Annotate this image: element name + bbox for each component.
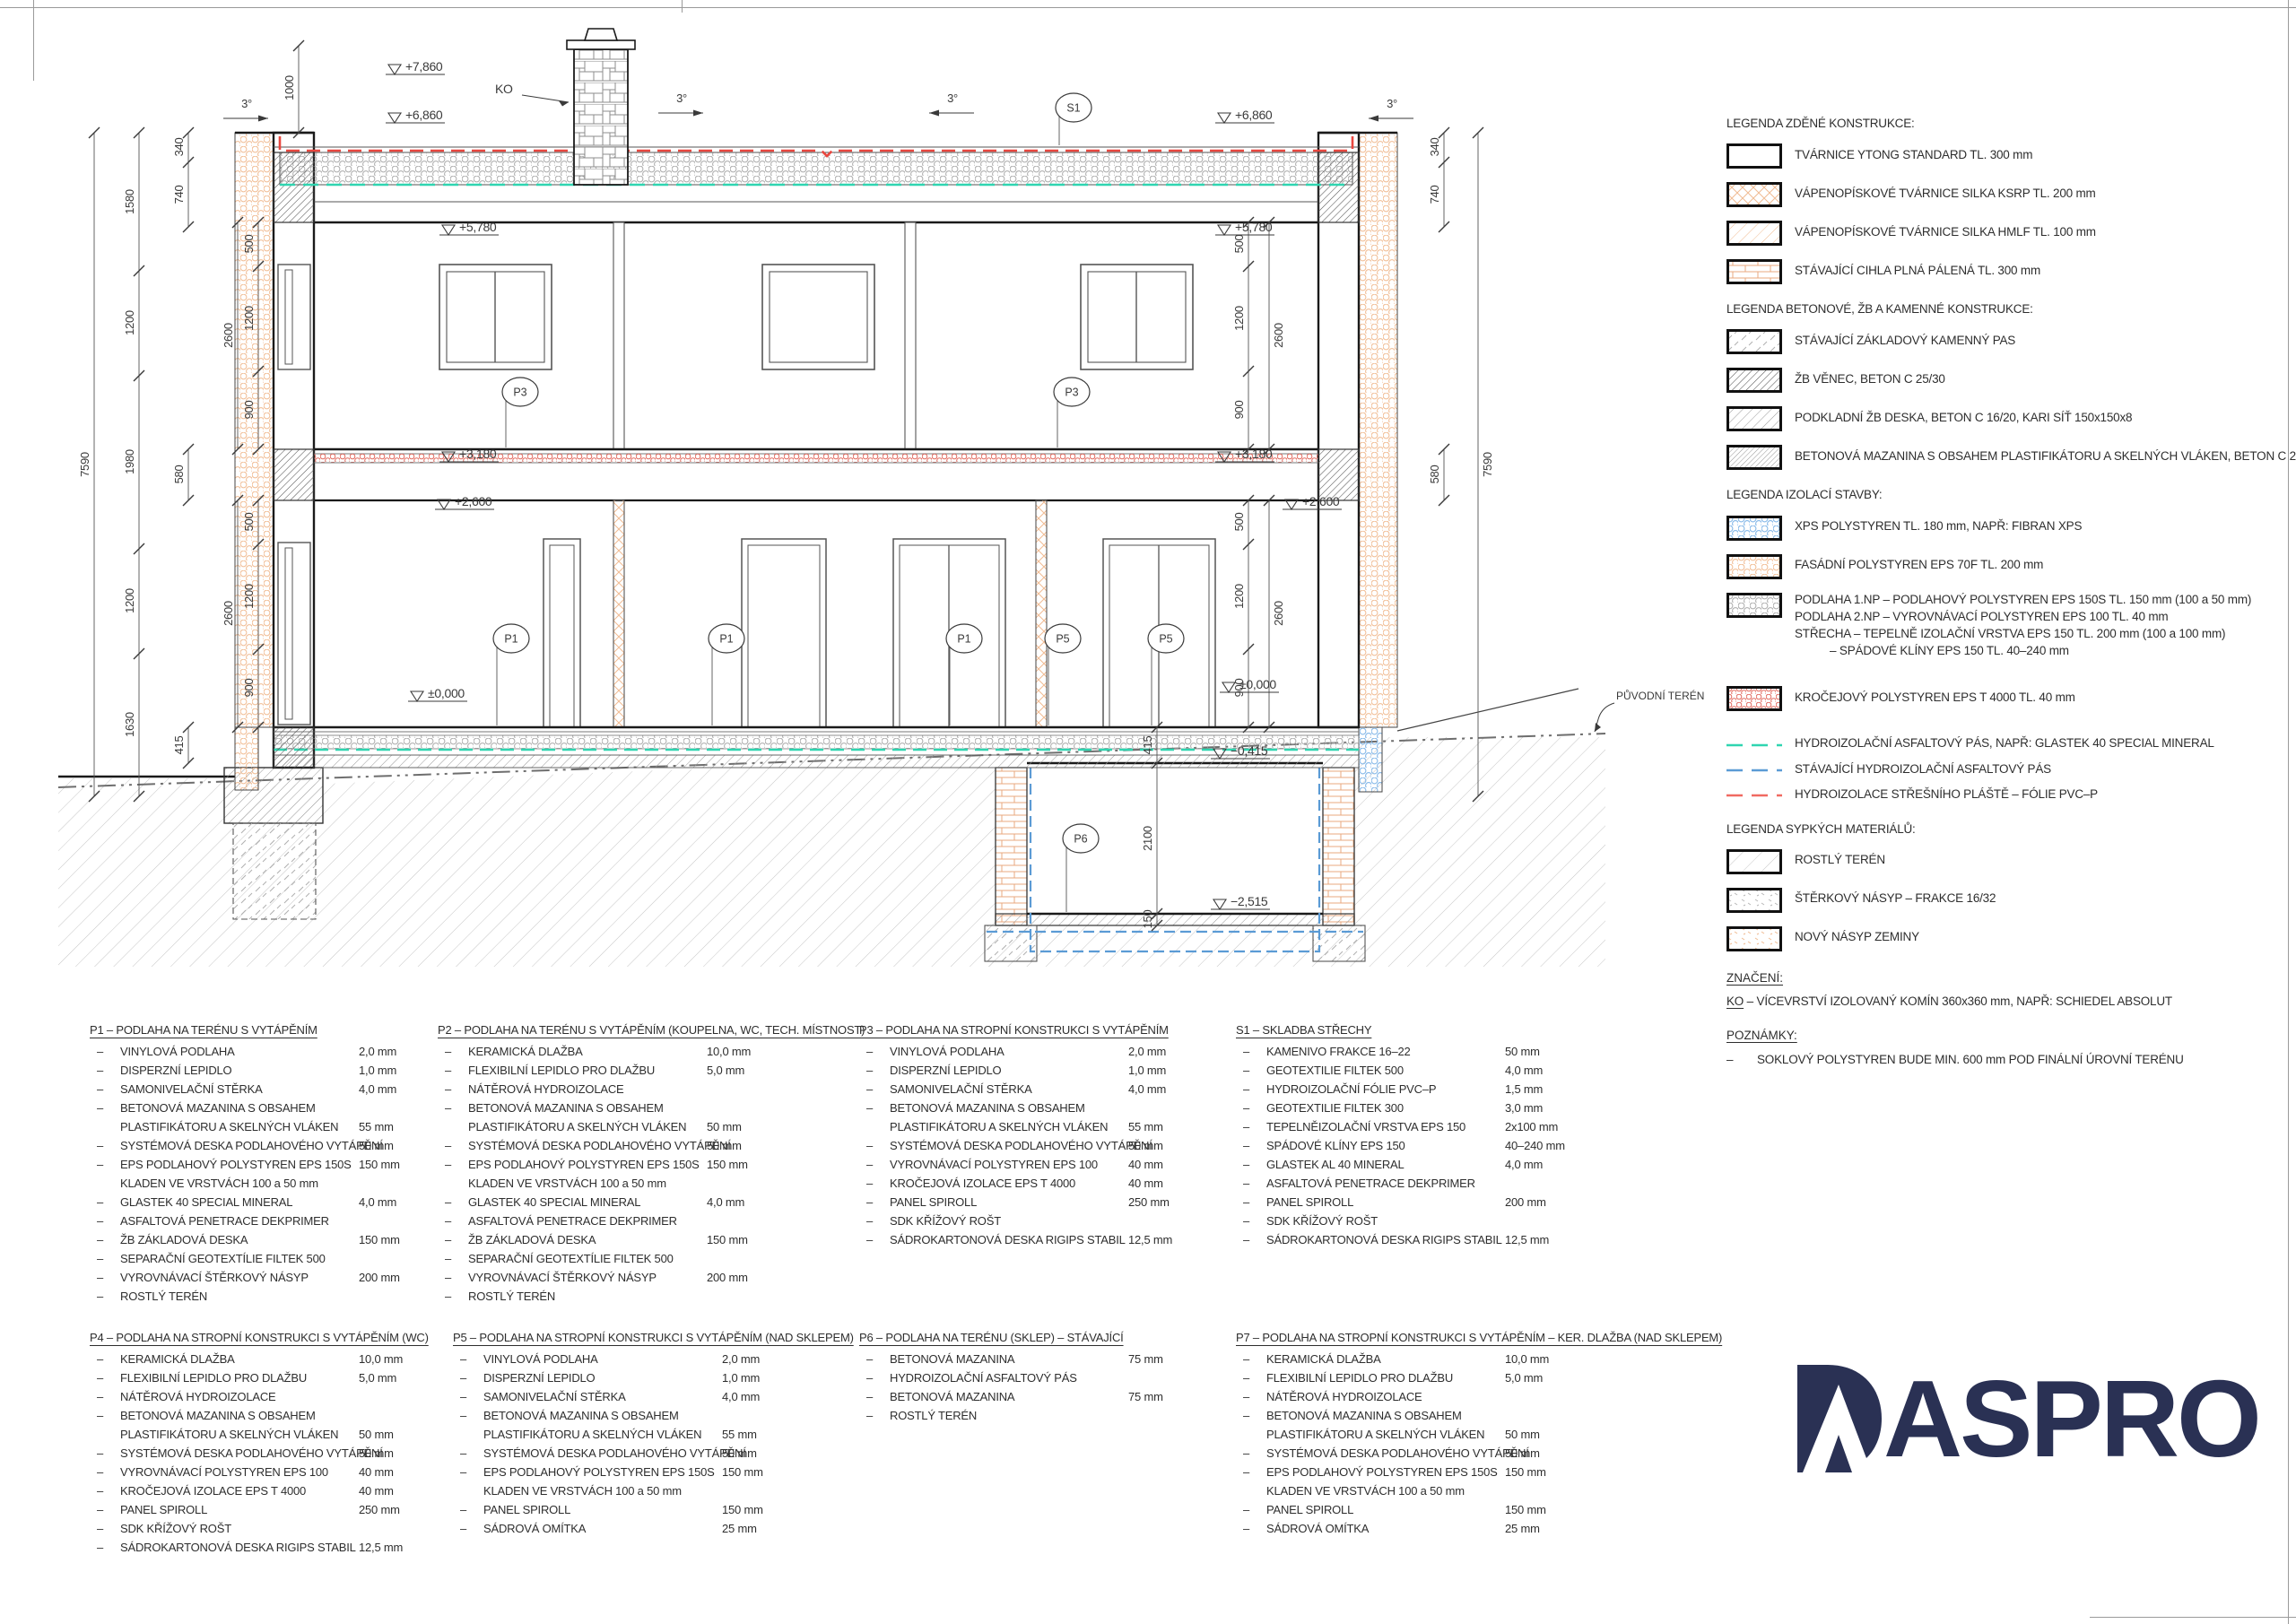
legend-item: ROSTLÝ TERÉN — [1726, 849, 2287, 874]
building-section-drawing: 7590158012001980120016303407405804152600… — [54, 18, 1722, 1013]
spec-row: –ROSTLÝ TERÉN — [438, 1287, 805, 1306]
drawing-label: 740 — [172, 186, 186, 204]
legend-item-label: ŠTĚRKOVÝ NÁSYP – FRAKCE 16/32 — [1795, 891, 1996, 908]
drawing-label: ±0,000 — [1239, 677, 1276, 691]
spec-row: PLASTIFIKÁTORU A SKELNÝCH VLÁKEN55 mm — [453, 1425, 821, 1444]
legend-section: LEGENDA BETONOVÉ, ŽB A KAMENNÉ KONSTRUKC… — [1726, 302, 2287, 470]
drawing-label: ±0,000 — [428, 686, 465, 700]
legend-item: BETONOVÁ MAZANINA S OBSAHEM PLASTIFIKÁTO… — [1726, 445, 2287, 470]
drawing-label: 340 — [172, 138, 186, 157]
legend-item-label: BETONOVÁ MAZANINA S OBSAHEM PLASTIFIKÁTO… — [1795, 449, 2296, 466]
spec-row: –VYROVNÁVACÍ POLYSTYREN EPS 10040 mm — [90, 1463, 457, 1481]
spec-row: –SYSTÉMOVÁ DESKA PODLAHOVÉHO VYTÁPĚNÍ50 … — [438, 1136, 805, 1155]
drawing-label: 500 — [242, 513, 256, 532]
spec-title: P1 – PODLAHA NA TERÉNU S VYTÁPĚNÍM — [90, 1020, 457, 1039]
spec-row: PLASTIFIKÁTORU A SKELNÝCH VLÁKEN50 mm — [1236, 1425, 1666, 1444]
spec-row: –NÁTĚROVÁ HYDROIZOLACE — [438, 1080, 805, 1099]
legend-item: TVÁRNICE YTONG STANDARD TL. 300 mm — [1726, 143, 2287, 169]
spec-row: –KROČEJOVÁ IZOLACE EPS T 400040 mm — [90, 1481, 457, 1500]
spec-row: –ŽB ZÁKLADOVÁ DESKA150 mm — [90, 1230, 457, 1249]
spec-row: –SAMONIVELAČNÍ STĚRKA4,0 mm — [453, 1387, 821, 1406]
legend-panel: LEGENDA ZDĚNÉ KONSTRUKCE:TVÁRNICE YTONG … — [1726, 117, 2287, 1067]
drawing-label: PŮVODNÍ TERÉN — [1616, 689, 1704, 702]
drawing-label: P3 — [1065, 386, 1078, 399]
drawing-label: 1000 — [283, 75, 296, 100]
drawing-label: +6,860 — [405, 108, 443, 122]
spec-row: –PANEL SPIROLL150 mm — [1236, 1500, 1666, 1519]
spec-title: P4 – PODLAHA NA STROPNÍ KONSTRUKCI S VYT… — [90, 1328, 457, 1347]
legend-item-label: KROČEJOVÝ POLYSTYREN EPS T 4000 TL. 40 m… — [1795, 690, 2075, 708]
note-text: SOKLOVÝ POLYSTYREN BUDE MIN. 600 mm POD … — [1757, 1053, 2184, 1066]
spec-row: PLASTIFIKÁTORU A SKELNÝCH VLÁKEN55 mm — [90, 1117, 457, 1136]
drawing-label: 740 — [1428, 186, 1441, 204]
spec-row: KLADEN VE VRSTVÁCH 100 a 50 mm — [453, 1481, 821, 1500]
drawing-label: −0,415 — [1231, 743, 1268, 758]
spec-row: –SDK KŘÍŽOVÝ ROŠT — [90, 1519, 457, 1538]
spec-row: KLADEN VE VRSTVÁCH 100 a 50 mm — [1236, 1481, 1666, 1500]
ko-text: – VÍCEVRSTVÍ IZOLOVANÝ KOMÍN 360x360 mm,… — [1744, 994, 2172, 1008]
drawing-label: S1 — [1066, 102, 1080, 115]
spec-row: –BETONOVÁ MAZANINA75 mm — [859, 1387, 1227, 1406]
drawing-label: 3° — [676, 91, 687, 105]
spec-row: –SYSTÉMOVÁ DESKA PODLAHOVÉHO VYTÁPĚNÍ50 … — [859, 1136, 1227, 1155]
frame-tick-top — [682, 0, 683, 13]
legend-item: KROČEJOVÝ POLYSTYREN EPS T 4000 TL. 40 m… — [1726, 686, 2287, 711]
legend-swatch-icon — [1726, 686, 1782, 711]
spec-block-p7: P7 – PODLAHA NA STROPNÍ KONSTRUKCI S VYT… — [1236, 1328, 1666, 1538]
legend-line-swatch — [1726, 765, 1782, 776]
spec-row: –KERAMICKÁ DLAŽBA10,0 mm — [1236, 1350, 1666, 1368]
legend-item-label: PODLAHA 1.NP – PODLAHOVÝ POLYSTYREN EPS … — [1795, 593, 2251, 662]
spec-row: –PANEL SPIROLL150 mm — [453, 1500, 821, 1519]
roof — [274, 136, 1359, 222]
drawing-label: +5,780 — [459, 220, 497, 234]
spec-row: –HYDROIZOLAČNÍ FÓLIE PVC–P1,5 mm — [1236, 1080, 1604, 1099]
spec-row: –SDK KŘÍŽOVÝ ROŠT — [1236, 1211, 1604, 1230]
spec-row: KLADEN VE VRSTVÁCH 100 a 50 mm — [438, 1174, 805, 1193]
legend-section-title: LEGENDA BETONOVÉ, ŽB A KAMENNÉ KONSTRUKC… — [1726, 302, 2287, 317]
spec-row: –PANEL SPIROLL250 mm — [859, 1193, 1227, 1211]
note-dash: – — [1726, 1053, 1757, 1067]
legend-item-label: HYDROIZOLAČNÍ ASFALTOVÝ PÁS, NAPŘ: GLAST… — [1795, 736, 2214, 753]
window — [1081, 265, 1193, 369]
spec-row: –BETONOVÁ MAZANINA S OBSAHEM — [1236, 1406, 1666, 1425]
legend-item-label: HYDROIZOLACE STŘEŠNÍHO PLÁŠTĚ – FÓLIE PV… — [1795, 787, 2098, 804]
drawing-label: 7590 — [78, 452, 91, 477]
spec-title: S1 – SKLADBA STŘECHY — [1236, 1020, 1604, 1039]
spec-row: –SÁDROVÁ OMÍTKA25 mm — [453, 1519, 821, 1538]
drawing-label: 2600 — [1272, 323, 1285, 348]
spec-row: PLASTIFIKÁTORU A SKELNÝCH VLÁKEN55 mm — [859, 1117, 1227, 1136]
spec-row: –DISPERZNÍ LEPIDLO1,0 mm — [90, 1061, 457, 1080]
spec-row: –SAMONIVELAČNÍ STĚRKA4,0 mm — [90, 1080, 457, 1099]
legend-item-label: TVÁRNICE YTONG STANDARD TL. 300 mm — [1795, 148, 2032, 165]
legend-line-swatch — [1726, 790, 1782, 801]
drawing-label: 150 — [1141, 910, 1154, 929]
legend-section: LEGENDA IZOLACÍ STAVBY:XPS POLYSTYREN TL… — [1726, 488, 2287, 804]
spec-row: –VYROVNÁVACÍ ŠTĚRKOVÝ NÁSYP200 mm — [90, 1268, 457, 1287]
legend-section-title: LEGENDA IZOLACÍ STAVBY: — [1726, 488, 2287, 502]
spec-title: P2 – PODLAHA NA TERÉNU S VYTÁPĚNÍM (KOUP… — [438, 1020, 805, 1039]
drawing-label: P5 — [1056, 633, 1069, 646]
drawing-label: 2100 — [1141, 826, 1154, 851]
spec-row: –ASFALTOVÁ PENETRACE DEKPRIMER — [90, 1211, 457, 1230]
drawing-label: 900 — [242, 679, 256, 698]
poznamky-title: POZNÁMKY: — [1726, 1029, 2287, 1043]
spec-row: –ŽB ZÁKLADOVÁ DESKA150 mm — [438, 1230, 805, 1249]
legend-item-label: NOVÝ NÁSYP ZEMINY — [1795, 930, 1919, 947]
spec-row: –SÁDROKARTONOVÁ DESKA RIGIPS STABIL12,5 … — [1236, 1230, 1604, 1249]
legend-item: NOVÝ NÁSYP ZEMINY — [1726, 926, 2287, 951]
spec-row: –TEPELNĚIZOLAČNÍ VRSTVA EPS 1502x100 mm — [1236, 1117, 1604, 1136]
legend-swatch-icon — [1726, 593, 1782, 618]
spec-row: –KROČEJOVÁ IZOLACE EPS T 400040 mm — [859, 1174, 1227, 1193]
spec-row: –NÁTĚROVÁ HYDROIZOLACE — [1236, 1387, 1666, 1406]
drawing-label: P1 — [504, 633, 517, 646]
spec-title: P7 – PODLAHA NA STROPNÍ KONSTRUKCI S VYT… — [1236, 1328, 1666, 1347]
spec-row: –VYROVNÁVACÍ POLYSTYREN EPS 10040 mm — [859, 1155, 1227, 1174]
legend-swatch-icon — [1726, 368, 1782, 393]
spec-row: –VYROVNÁVACÍ ŠTĚRKOVÝ NÁSYP200 mm — [438, 1268, 805, 1287]
frame-tick-left — [33, 0, 34, 81]
spec-row: –EPS PODLAHOVÝ POLYSTYREN EPS 150S150 mm — [438, 1155, 805, 1174]
spec-row: –VINYLOVÁ PODLAHA2,0 mm — [859, 1042, 1227, 1061]
drawing-label: 580 — [1428, 465, 1441, 484]
drawing-label: P5 — [1159, 633, 1172, 646]
legend-item-label: VÁPENOPÍSKOVÉ TVÁRNICE SILKA HMLF TL. 10… — [1795, 225, 2096, 242]
legend-item-label: STÁVAJÍCÍ ZÁKLADOVÝ KAMENNÝ PAS — [1795, 334, 2015, 351]
znaceni-ko: KO – VÍCEVRSTVÍ IZOLOVANÝ KOMÍN 360x360 … — [1726, 994, 2287, 1009]
spec-row: –SÁDROVÁ OMÍTKA25 mm — [1236, 1519, 1666, 1538]
legend-item: HYDROIZOLAČNÍ ASFALTOVÝ PÁS, NAPŘ: GLAST… — [1726, 736, 2287, 753]
window — [439, 265, 552, 369]
spec-block-p5: P5 – PODLAHA NA STROPNÍ KONSTRUKCI S VYT… — [453, 1328, 821, 1538]
legend-swatch-icon — [1726, 329, 1782, 354]
drawing-label: 1200 — [242, 306, 256, 331]
legend-swatch-icon — [1726, 259, 1782, 284]
first-floor — [278, 500, 1215, 727]
frame-bottom — [2090, 1617, 2296, 1618]
spec-block-p4: P4 – PODLAHA NA STROPNÍ KONSTRUKCI S VYT… — [90, 1328, 457, 1557]
legend-item: FASÁDNÍ POLYSTYREN EPS 70F TL. 200 mm — [1726, 554, 2287, 579]
spec-row: –GEOTEXTILIE FILTEK 3003,0 mm — [1236, 1099, 1604, 1117]
drawing-label: 1200 — [1232, 306, 1246, 331]
legend-swatch-icon — [1726, 406, 1782, 431]
ground-slab — [274, 727, 1359, 768]
drawing-label: +2,600 — [455, 494, 492, 508]
legend-item-label: VÁPENOPÍSKOVÉ TVÁRNICE SILKA KSRP TL. 20… — [1795, 187, 2096, 204]
drawing-label: 1200 — [242, 584, 256, 609]
spec-row: –DISPERZNÍ LEPIDLO1,0 mm — [859, 1061, 1227, 1080]
spec-row: –SEPARAČNÍ GEOTEXTÍLIE FILTEK 500 — [90, 1249, 457, 1268]
spec-block-p2: P2 – PODLAHA NA TERÉNU S VYTÁPĚNÍM (KOUP… — [438, 1020, 805, 1306]
drawing-label: 3° — [1387, 97, 1397, 110]
drawing-label: 2600 — [222, 323, 235, 348]
legend-swatch-icon — [1726, 445, 1782, 470]
spec-row: –FLEXIBILNÍ LEPIDLO PRO DLAŽBU5,0 mm — [1236, 1368, 1666, 1387]
drawing-label: 500 — [1232, 235, 1246, 254]
ko-label: KO — [1726, 994, 1744, 1008]
legend-item-label: ROSTLÝ TERÉN — [1795, 853, 1885, 870]
drawing-label: 500 — [242, 235, 256, 254]
spec-row: –SEPARAČNÍ GEOTEXTÍLIE FILTEK 500 — [438, 1249, 805, 1268]
drawing-label: 2600 — [1272, 601, 1285, 626]
spec-row: –BETONOVÁ MAZANINA S OBSAHEM — [90, 1406, 457, 1425]
drawing-label: +6,860 — [1235, 108, 1273, 122]
legend-item-label: STÁVAJÍCÍ HYDROIZOLAČNÍ ASFALTOVÝ PÁS — [1795, 762, 2051, 779]
drawing-label: +3,180 — [1235, 447, 1273, 461]
frame-right — [2288, 0, 2289, 1624]
note-row: –SOKLOVÝ POLYSTYREN BUDE MIN. 600 mm POD… — [1726, 1053, 2287, 1067]
legend-item: ŽB VĚNEC, BETON C 25/30 — [1726, 368, 2287, 393]
spec-row: –KAMENIVO FRAKCE 16–2250 mm — [1236, 1042, 1604, 1061]
legend-item: ŠTĚRKOVÝ NÁSYP – FRAKCE 16/32 — [1726, 888, 2287, 913]
legend-item-label: STÁVAJÍCÍ CIHLA PLNÁ PÁLENÁ TL. 300 mm — [1795, 264, 2040, 281]
spec-row: –ROSTLÝ TERÉN — [90, 1287, 457, 1306]
drawing-label: +2,600 — [1302, 494, 1340, 508]
drawing-label: 7590 — [1481, 452, 1494, 477]
spec-block-p6: P6 – PODLAHA NA TERÉNU (SKLEP) – STÁVAJÍ… — [859, 1328, 1227, 1425]
legend-section: LEGENDA SYPKÝCH MATERIÁLŮ:ROSTLÝ TERÉNŠT… — [1726, 822, 2287, 951]
spec-row: –BETONOVÁ MAZANINA S OBSAHEM — [453, 1406, 821, 1425]
drawing-label: 1200 — [123, 588, 136, 613]
spec-row: –DISPERZNÍ LEPIDLO1,0 mm — [453, 1368, 821, 1387]
spec-row: –BETONOVÁ MAZANINA S OBSAHEM — [438, 1099, 805, 1117]
drawing-label: 900 — [242, 401, 256, 420]
door — [544, 539, 580, 727]
legend-item: VÁPENOPÍSKOVÉ TVÁRNICE SILKA KSRP TL. 20… — [1726, 182, 2287, 207]
spec-row: –EPS PODLAHOVÝ POLYSTYREN EPS 150S150 mm — [1236, 1463, 1666, 1481]
legend-section: LEGENDA ZDĚNÉ KONSTRUKCE:TVÁRNICE YTONG … — [1726, 117, 2287, 284]
drawing-label: 500 — [1232, 513, 1246, 532]
legend-swatch-icon — [1726, 554, 1782, 579]
drawing-label: P6 — [1074, 833, 1087, 846]
legend-item-label: XPS POLYSTYREN TL. 180 mm, NAPŘ: FIBRAN … — [1795, 519, 2082, 536]
spec-row: –EPS PODLAHOVÝ POLYSTYREN EPS 150S150 mm — [453, 1463, 821, 1481]
drawing-label: +3,180 — [459, 447, 497, 461]
spec-row: –EPS PODLAHOVÝ POLYSTYREN EPS 150S150 mm — [90, 1155, 457, 1174]
drawing-label: 1580 — [123, 189, 136, 214]
spec-row: –SYSTÉMOVÁ DESKA PODLAHOVÉHO VYTÁPĚNÍ50 … — [453, 1444, 821, 1463]
spec-row: –SÁDROKARTONOVÁ DESKA RIGIPS STABIL12,5 … — [859, 1230, 1227, 1249]
drawing-label: +7,860 — [405, 59, 443, 74]
spec-row: –ROSTLÝ TERÉN — [859, 1406, 1227, 1425]
drawing-label: 1980 — [123, 449, 136, 474]
legend-item: PODKLADNÍ ŽB DESKA, BETON C 16/20, KARI … — [1726, 406, 2287, 431]
drawing-label: 1630 — [123, 712, 136, 737]
drawing-label: 415 — [1141, 736, 1154, 755]
spec-row: –FLEXIBILNÍ LEPIDLO PRO DLAŽBU5,0 mm — [90, 1368, 457, 1387]
spec-row: –VINYLOVÁ PODLAHA2,0 mm — [90, 1042, 457, 1061]
daspro-logo: ASPRO — [1794, 1363, 2259, 1474]
drawing-label: P1 — [957, 633, 970, 646]
drawing-label: P1 — [719, 633, 733, 646]
spec-row: PLASTIFIKÁTORU A SKELNÝCH VLÁKEN50 mm — [90, 1425, 457, 1444]
drawing-label: 900 — [1232, 401, 1246, 420]
spec-row: –GLASTEK 40 SPECIAL MINERAL4,0 mm — [438, 1193, 805, 1211]
spec-row: –PANEL SPIROLL250 mm — [90, 1500, 457, 1519]
drawing-sheet: { "drawing": { "lv": { "p7860": "+7,860"… — [0, 0, 2296, 1624]
daspro-logo-d-icon — [1794, 1363, 1883, 1474]
spec-row: –FLEXIBILNÍ LEPIDLO PRO DLAŽBU5,0 mm — [438, 1061, 805, 1080]
spec-block-p1: P1 – PODLAHA NA TERÉNU S VYTÁPĚNÍM–VINYL… — [90, 1020, 457, 1306]
second-floor — [278, 222, 1193, 449]
drawing-label: 1200 — [1232, 584, 1246, 609]
spec-row: –BETONOVÁ MAZANINA S OBSAHEM — [859, 1099, 1227, 1117]
spec-block-s1: S1 – SKLADBA STŘECHY–KAMENIVO FRAKCE 16–… — [1236, 1020, 1604, 1249]
spec-row: –GLASTEK 40 SPECIAL MINERAL4,0 mm — [90, 1193, 457, 1211]
spec-row: –ASFALTOVÁ PENETRACE DEKPRIMER — [438, 1211, 805, 1230]
drawing-label: 415 — [172, 736, 186, 755]
spec-row: –GLASTEK AL 40 MINERAL4,0 mm — [1236, 1155, 1604, 1174]
legend-swatch-icon — [1726, 182, 1782, 207]
drawing-label: 1200 — [123, 310, 136, 335]
legend-section-title: LEGENDA ZDĚNÉ KONSTRUKCE: — [1726, 117, 2287, 131]
legend-item: STÁVAJÍCÍ CIHLA PLNÁ PÁLENÁ TL. 300 mm — [1726, 259, 2287, 284]
legend-item: STÁVAJÍCÍ ZÁKLADOVÝ KAMENNÝ PAS — [1726, 329, 2287, 354]
spec-row: –NÁTĚROVÁ HYDROIZOLACE — [90, 1387, 457, 1406]
daspro-logo-text: ASPRO — [1883, 1363, 2259, 1474]
spec-row: –SÁDROKARTONOVÁ DESKA RIGIPS STABIL12,5 … — [90, 1538, 457, 1557]
spec-row: –KERAMICKÁ DLAŽBA10,0 mm — [438, 1042, 805, 1061]
drawing-label: −2,515 — [1231, 894, 1268, 908]
legend-swatch-icon — [1726, 926, 1782, 951]
drawing-label: +5,780 — [1235, 220, 1273, 234]
legend-swatch-icon — [1726, 143, 1782, 169]
spec-row: –SAMONIVELAČNÍ STĚRKA4,0 mm — [859, 1080, 1227, 1099]
legend-item: HYDROIZOLACE STŘEŠNÍHO PLÁŠTĚ – FÓLIE PV… — [1726, 787, 2287, 804]
spec-row: –SDK KŘÍŽOVÝ ROŠT — [859, 1211, 1227, 1230]
drawing-label: 3° — [947, 91, 958, 105]
legend-item-label: ŽB VĚNEC, BETON C 25/30 — [1795, 372, 1945, 389]
drawing-label: P3 — [513, 386, 526, 399]
spec-row: –SPÁDOVÉ KLÍNY EPS 15040–240 mm — [1236, 1136, 1604, 1155]
legend-item-label: PODKLADNÍ ŽB DESKA, BETON C 16/20, KARI … — [1795, 411, 2132, 428]
legend-swatch-icon — [1726, 849, 1782, 874]
spec-block-p3: P3 – PODLAHA NA STROPNÍ KONSTRUKCI S VYT… — [859, 1020, 1227, 1249]
legend-swatch-icon — [1726, 221, 1782, 246]
spec-title: P6 – PODLAHA NA TERÉNU (SKLEP) – STÁVAJÍ… — [859, 1328, 1227, 1347]
spec-row: –HYDROIZOLAČNÍ ASFALTOVÝ PÁS — [859, 1368, 1227, 1387]
spec-row: –BETONOVÁ MAZANINA75 mm — [859, 1350, 1227, 1368]
spec-row: –KERAMICKÁ DLAŽBA10,0 mm — [90, 1350, 457, 1368]
legend-item: XPS POLYSTYREN TL. 180 mm, NAPŘ: FIBRAN … — [1726, 516, 2287, 541]
spec-title: P3 – PODLAHA NA STROPNÍ KONSTRUKCI S VYT… — [859, 1020, 1227, 1039]
drawing-label: 580 — [172, 465, 186, 484]
interfloor-slab — [274, 449, 1359, 500]
legend-item: STÁVAJÍCÍ HYDROIZOLAČNÍ ASFALTOVÝ PÁS — [1726, 762, 2287, 779]
spec-title: P5 – PODLAHA NA STROPNÍ KONSTRUKCI S VYT… — [453, 1328, 821, 1347]
legend-swatch-icon — [1726, 516, 1782, 541]
drawing-label: 2600 — [222, 601, 235, 626]
legend-item-label: FASÁDNÍ POLYSTYREN EPS 70F TL. 200 mm — [1795, 558, 2043, 575]
spec-row: –ASFALTOVÁ PENETRACE DEKPRIMER — [1236, 1174, 1604, 1193]
legend-item: PODLAHA 1.NP – PODLAHOVÝ POLYSTYREN EPS … — [1726, 593, 2287, 662]
spec-row: –PANEL SPIROLL200 mm — [1236, 1193, 1604, 1211]
drawing-label: KO — [495, 82, 513, 96]
spec-row: –SYSTÉMOVÁ DESKA PODLAHOVÉHO VYTÁPĚNÍ50 … — [1236, 1444, 1666, 1463]
spec-row: –SYSTÉMOVÁ DESKA PODLAHOVÉHO VYTÁPĚNÍ50 … — [90, 1136, 457, 1155]
legend-item: VÁPENOPÍSKOVÉ TVÁRNICE SILKA HMLF TL. 10… — [1726, 221, 2287, 246]
window — [762, 265, 874, 369]
drawing-label: 3° — [241, 97, 252, 110]
legend-swatch-icon — [1726, 888, 1782, 913]
spec-row: KLADEN VE VRSTVÁCH 100 a 50 mm — [90, 1174, 457, 1193]
spec-row: –BETONOVÁ MAZANINA S OBSAHEM — [90, 1099, 457, 1117]
chimney — [567, 29, 635, 185]
spec-row: –SYSTÉMOVÁ DESKA PODLAHOVÉHO VYTÁPĚNÍ50 … — [90, 1444, 457, 1463]
legend-line-swatch — [1726, 740, 1782, 751]
znaceni-title: ZNAČENÍ: — [1726, 971, 2287, 986]
door — [742, 539, 826, 727]
legend-section-title: LEGENDA SYPKÝCH MATERIÁLŮ: — [1726, 822, 2287, 837]
spec-row: –VINYLOVÁ PODLAHA2,0 mm — [453, 1350, 821, 1368]
frame-top — [0, 7, 2296, 8]
spec-row: PLASTIFIKÁTORU A SKELNÝCH VLÁKEN50 mm — [438, 1117, 805, 1136]
drawing-label: 340 — [1428, 138, 1441, 157]
spec-row: –GEOTEXTILIE FILTEK 5004,0 mm — [1236, 1061, 1604, 1080]
